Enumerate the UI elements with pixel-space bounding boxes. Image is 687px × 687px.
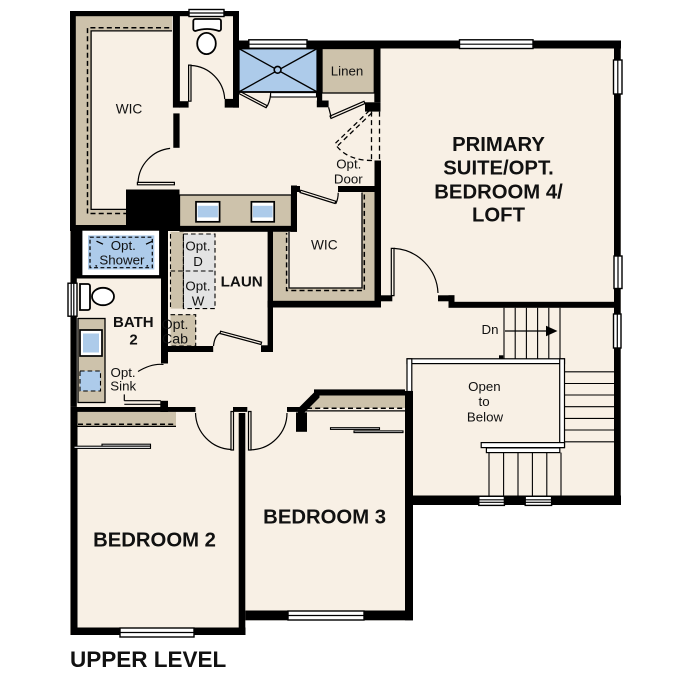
- svg-text:2: 2: [129, 332, 137, 349]
- svg-text:UPPER LEVEL: UPPER LEVEL: [70, 647, 227, 672]
- svg-text:WIC: WIC: [116, 102, 143, 117]
- svg-text:Opt.: Opt.: [111, 365, 136, 380]
- svg-text:D: D: [193, 254, 203, 269]
- svg-text:Cab: Cab: [162, 331, 188, 347]
- svg-text:Dn: Dn: [482, 322, 499, 337]
- svg-text:BATH: BATH: [113, 314, 154, 331]
- svg-text:Opt.: Opt.: [336, 157, 361, 172]
- svg-text:Below: Below: [467, 410, 504, 425]
- svg-text:Shower: Shower: [99, 253, 145, 268]
- svg-text:PRIMARY: PRIMARY: [452, 134, 545, 156]
- svg-text:Open: Open: [468, 379, 501, 394]
- svg-text:SUITE/OPT.: SUITE/OPT.: [443, 158, 553, 180]
- svg-text:to: to: [479, 394, 490, 409]
- svg-text:LAUN: LAUN: [221, 274, 263, 291]
- svg-text:BEDROOM 4/: BEDROOM 4/: [434, 181, 563, 203]
- svg-text:Opt.: Opt.: [185, 239, 210, 254]
- svg-text:BEDROOM 3: BEDROOM 3: [263, 507, 386, 529]
- svg-text:LOFT: LOFT: [472, 204, 526, 226]
- svg-text:Door: Door: [334, 172, 363, 187]
- svg-text:Opt.: Opt.: [185, 278, 210, 293]
- svg-text:Opt.: Opt.: [111, 238, 136, 253]
- svg-text:Sink: Sink: [110, 379, 136, 394]
- svg-text:Linen: Linen: [331, 63, 364, 78]
- svg-text:BEDROOM 2: BEDROOM 2: [93, 530, 216, 552]
- svg-text:WIC: WIC: [311, 238, 338, 253]
- svg-text:W: W: [192, 294, 205, 309]
